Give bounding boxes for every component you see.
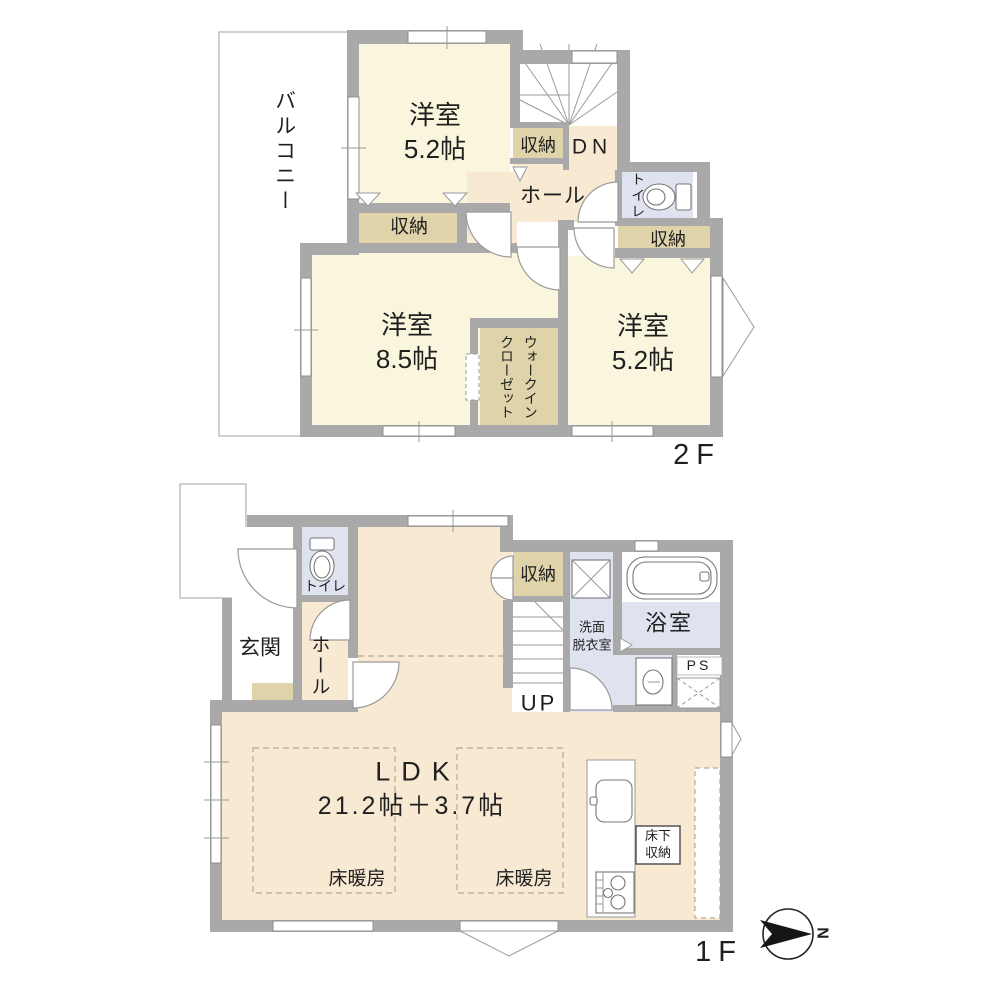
room-a-label: 洋室 5.2帖 — [404, 99, 466, 167]
bathtub-icon — [627, 557, 717, 599]
floor-2-label: 2F — [673, 437, 721, 475]
room-c-name: 洋室 — [612, 310, 674, 344]
washing-machine-icon — [572, 560, 610, 598]
kitchen-sink-icon — [596, 780, 632, 822]
wic-line1: ウォークイン — [518, 335, 542, 419]
stairs-up-label: UP — [521, 690, 558, 719]
toilet-icon — [310, 538, 334, 581]
bay-window-2f — [711, 276, 754, 377]
balcony-label: バルコニー — [270, 90, 297, 215]
ldk-title: LDK — [375, 754, 461, 789]
room-b-label: 洋室 8.5帖 — [376, 309, 438, 377]
underfloor-line2: 収納 — [645, 845, 671, 862]
floor-plan: バルコニー 洋室 5.2帖 収納 収納 DN ホール トイレ 収納 洋室 5.2… — [0, 0, 1000, 1000]
closet-a-label: 収納 — [390, 216, 428, 241]
underfloor-storage-label: 床下 収納 — [645, 828, 671, 862]
first-floor-plan — [180, 484, 741, 956]
closet-b-label: 収納 — [520, 134, 556, 157]
floor-plan-drawing — [0, 0, 1000, 1000]
closet-d-label: 収納 — [520, 563, 556, 586]
room-c-label: 洋室 5.2帖 — [612, 310, 674, 378]
room-c-size: 5.2帖 — [612, 344, 674, 378]
toilet-2f-label: トイレ — [629, 172, 647, 220]
bay-window-1f-bottom — [460, 931, 558, 956]
stove-icon — [596, 872, 634, 913]
washroom-line1: 洗面 — [572, 618, 611, 636]
bay-window-1f-right — [732, 723, 741, 755]
underfloor-line1: 床下 — [645, 828, 671, 845]
toilet-icon — [643, 184, 691, 210]
washroom-label: 洗面 脱衣室 — [572, 618, 611, 653]
toilet-1f-label: トイレ — [304, 577, 346, 595]
hall-2f-label: ホール — [520, 182, 586, 209]
entrance-label: 玄関 — [239, 634, 281, 661]
stairs-down-label: DN — [572, 133, 612, 160]
kitchen-counter — [587, 760, 635, 917]
compass-north-label: N — [811, 927, 832, 939]
washroom-line2: 脱衣室 — [572, 636, 611, 654]
wic-label: ウォークイン クローゼット — [494, 335, 542, 419]
closet-c-label: 収納 — [650, 228, 686, 251]
room-a-name: 洋室 — [404, 99, 466, 133]
hall-1f-label: ホール — [306, 635, 331, 698]
room-b-size: 8.5帖 — [376, 343, 438, 377]
pipe-space-label: PS — [687, 656, 712, 674]
floor-1-label: 1F — [695, 934, 743, 972]
room-b-name: 洋室 — [376, 309, 438, 343]
sliding-door-icon — [466, 354, 479, 400]
ldk-size: 21.2帖＋3.7帖 — [318, 790, 506, 823]
floor-heating-1-label: 床暖房 — [328, 868, 385, 893]
floor-heating-2-label: 床暖房 — [495, 868, 552, 893]
room-a-size: 5.2帖 — [404, 133, 466, 167]
bathroom-label: 浴室 — [645, 610, 693, 639]
counter-strip — [695, 768, 720, 918]
sink-icon — [636, 658, 672, 705]
compass-icon — [760, 909, 813, 959]
wic-line2: クローゼット — [494, 335, 518, 419]
